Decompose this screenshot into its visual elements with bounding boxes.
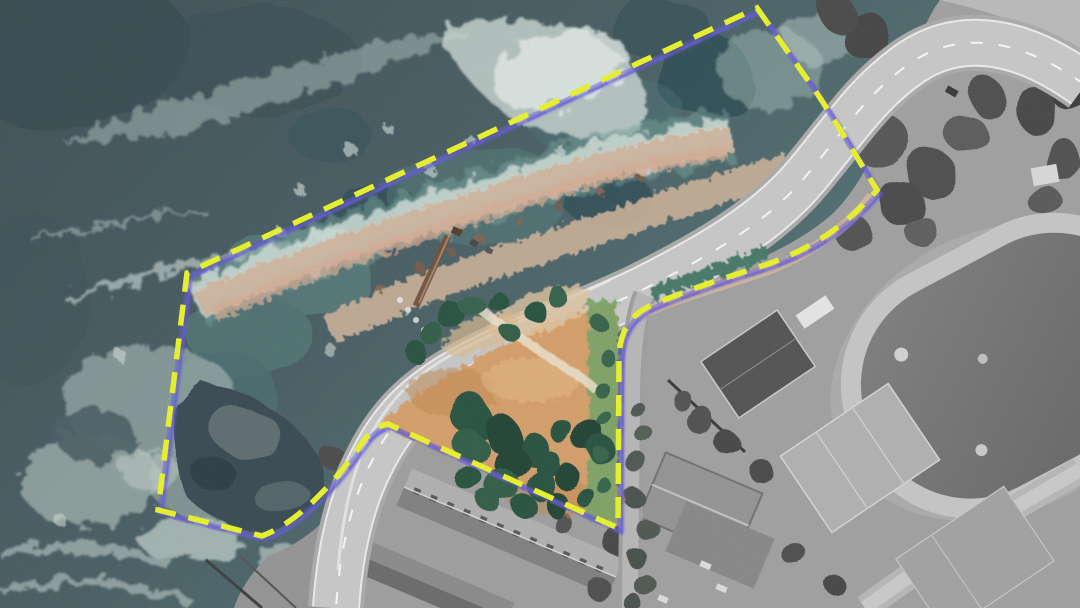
aerial-photo-canvas	[0, 0, 1080, 608]
aerial-site-map	[0, 0, 1080, 608]
photo-grain-overlay	[0, 0, 1080, 608]
